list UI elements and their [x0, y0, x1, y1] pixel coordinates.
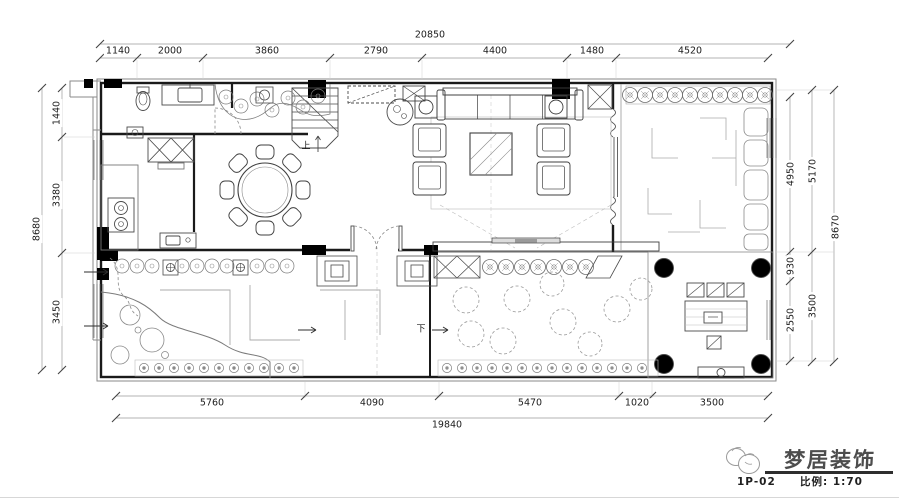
brand-name: 梦居装饰	[783, 444, 877, 474]
brand-logo	[727, 447, 760, 473]
title-block-rule	[765, 471, 893, 474]
dim-top-total: 20850	[413, 30, 447, 40]
dim-right-inner-2: 2550	[786, 306, 796, 334]
dim-right-inner-1: 930	[786, 255, 796, 277]
dim-bottom-total: 19840	[430, 420, 464, 430]
dim-left-seg-0: 1440	[52, 99, 62, 127]
sheet-number: 1P-02	[737, 477, 776, 488]
entry-down-label: 下	[416, 326, 425, 335]
dim-top-seg-4: 4400	[481, 46, 509, 56]
image-bottom-edge	[0, 497, 899, 498]
scale-label: 比例: 1:70	[800, 477, 863, 488]
dim-bottom-seg-2: 5470	[516, 398, 544, 408]
dim-top-seg-6: 4520	[676, 46, 704, 56]
dim-left-seg-2: 3450	[52, 298, 62, 326]
bathroom	[127, 84, 241, 138]
dim-top-seg-2: 3860	[253, 46, 281, 56]
front-yard	[84, 258, 380, 378]
dim-right-total: 8670	[831, 213, 841, 241]
dim-right-outer-0: 5170	[808, 157, 818, 185]
dim-top-seg-0: 1140	[104, 46, 132, 56]
dim-top-seg-5: 1480	[578, 46, 606, 56]
dim-left-total: 8680	[32, 215, 42, 243]
kitchen	[101, 138, 196, 250]
courtyard	[623, 86, 773, 250]
stepping-stone-yard	[434, 256, 658, 376]
dim-bottom-seg-0: 5760	[198, 398, 226, 408]
dim-bottom-seg-1: 4090	[358, 398, 386, 408]
dim-bottom-seg-3: 1020	[623, 398, 651, 408]
pavilion	[648, 252, 773, 378]
dim-bottom-seg-4: 3500	[698, 398, 726, 408]
dim-top-seg-3: 2790	[362, 46, 390, 56]
dim-right-inner-0: 4950	[786, 160, 796, 188]
dining-table	[220, 145, 310, 235]
hall-cabinets	[348, 85, 612, 109]
dim-right-outer-1: 3500	[808, 292, 818, 320]
dim-top-seg-1: 2000	[156, 46, 184, 56]
dim-left-seg-1: 3380	[52, 181, 62, 209]
floor-plan-sheet: 20850 1140 2000 3860 2790 4400 1480 4520…	[0, 0, 899, 500]
living-room	[413, 88, 659, 251]
stair-up-label: 上	[301, 143, 310, 152]
